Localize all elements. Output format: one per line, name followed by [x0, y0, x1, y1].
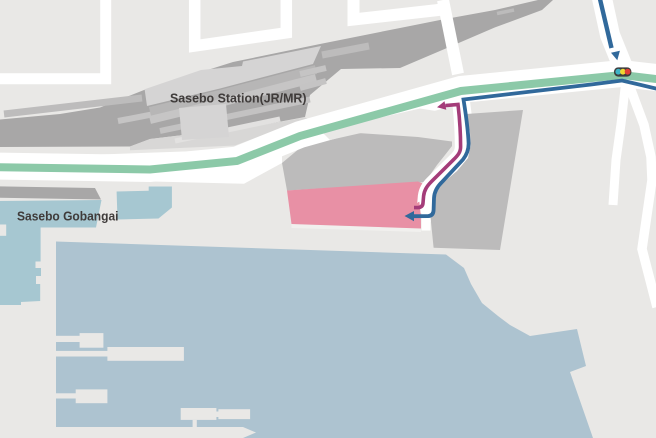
- svg-text:Sasebo Gobangai: Sasebo Gobangai: [17, 208, 119, 223]
- svg-text:Sasebo Station(JR/MR): Sasebo Station(JR/MR): [170, 91, 307, 106]
